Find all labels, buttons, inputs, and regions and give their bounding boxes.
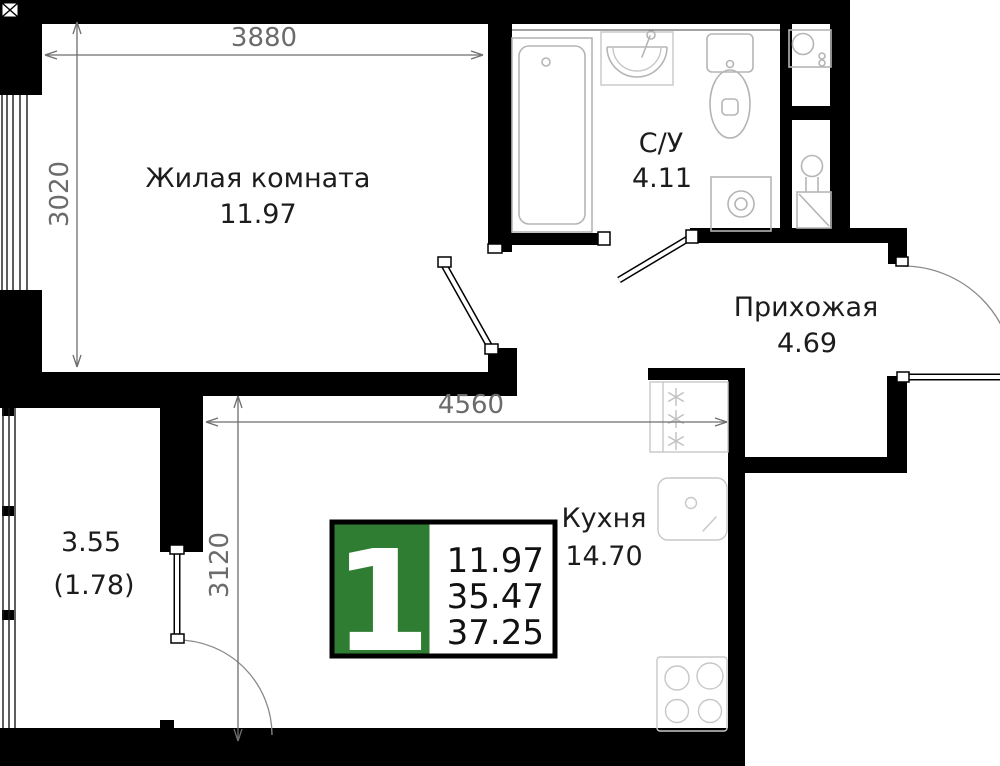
bathroom-sink-icon xyxy=(601,31,673,85)
dimension-kitchen-depth: 3120 xyxy=(205,396,242,741)
washing-machine-icon xyxy=(711,177,771,231)
fridge-icon xyxy=(650,382,728,452)
bathroom-area: 4.11 xyxy=(632,163,692,194)
vent-shaft-icon xyxy=(2,3,19,18)
bathroom-door xyxy=(598,230,698,280)
water-heater-icon xyxy=(789,30,831,67)
bathroom-label: С/У xyxy=(639,128,683,159)
dim-living-depth-label: 3020 xyxy=(45,161,75,227)
badge-living-area: 11.97 xyxy=(447,541,544,581)
apartment-info-badge: 1 11.97 35.47 37.25 xyxy=(332,521,555,684)
toilet-icon xyxy=(707,34,753,138)
kitchen-area: 14.70 xyxy=(565,541,642,572)
kitchen-label: Кухня xyxy=(561,503,646,534)
balcony-area: 3.55 xyxy=(61,527,121,558)
kitchen-sink-icon xyxy=(658,478,727,540)
badge-total-area: 37.25 xyxy=(447,613,544,653)
balcony-window xyxy=(3,408,15,728)
hallway-area: 4.69 xyxy=(777,328,837,359)
living-room-label: Жилая комната xyxy=(146,163,371,194)
balcony-area-coef: (1.78) xyxy=(53,570,134,601)
bathtub-icon xyxy=(512,38,592,232)
hallway-label: Прихожая xyxy=(734,292,879,323)
living-room-area: 11.97 xyxy=(219,199,296,230)
dim-kitchen-width-label: 4560 xyxy=(438,390,504,420)
dim-living-width-label: 3880 xyxy=(231,23,297,53)
living-room-door xyxy=(438,257,498,354)
floor-plan: 3880 3020 4560 3120 Жилая комната 11.97 … xyxy=(0,0,1000,766)
dim-kitchen-depth-label: 3120 xyxy=(205,532,235,598)
dimension-living-depth: 3020 xyxy=(45,22,81,367)
badge-room-count: 1 xyxy=(333,521,430,684)
entrance-door xyxy=(896,257,1000,382)
living-room-window xyxy=(2,95,27,290)
stove-icon xyxy=(657,657,727,731)
utility-sink-icon xyxy=(797,156,831,229)
badge-area-no-balcony: 35.47 xyxy=(447,577,544,617)
dimension-living-width: 3880 xyxy=(45,23,483,59)
